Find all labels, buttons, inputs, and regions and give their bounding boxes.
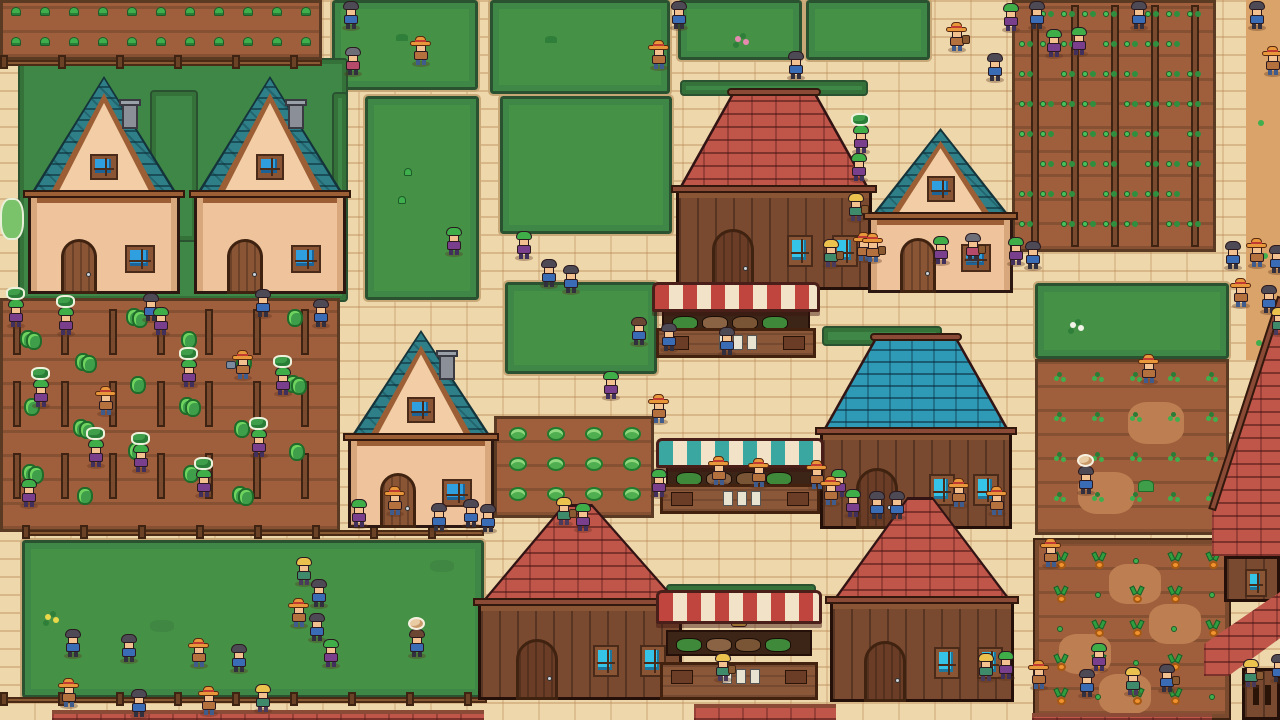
villager-hair	[1003, 3, 1019, 12]
door[interactable]	[712, 229, 754, 290]
trellis-pole	[109, 453, 117, 499]
tiny-sprout-cluster	[1168, 496, 1173, 501]
villager-hair	[58, 307, 74, 316]
villager-dark[interactable]	[1246, 0, 1268, 30]
villager-straw[interactable]	[188, 638, 210, 668]
villager-dark[interactable]	[1076, 668, 1098, 698]
building-house-teal[interactable]	[194, 76, 346, 294]
villager-dark[interactable]	[477, 503, 499, 533]
villager-dark[interactable]	[716, 326, 738, 356]
carrot-plant	[1091, 552, 1107, 570]
villager-body	[432, 517, 446, 526]
window-glass	[296, 250, 314, 266]
carrot-plant	[1053, 654, 1069, 672]
villager-straw[interactable]	[748, 458, 770, 488]
villager-dark[interactable]	[1026, 0, 1048, 30]
villager-dark[interactable]	[428, 502, 450, 532]
villager-dark[interactable]	[62, 628, 84, 658]
small-sprout	[1133, 558, 1139, 564]
villager-hair	[231, 644, 247, 653]
villager-dark[interactable]	[310, 298, 332, 328]
hop-bundle	[194, 457, 213, 470]
door-knob	[895, 678, 900, 683]
building-house-teal[interactable]	[868, 128, 1013, 293]
window-mullion	[94, 168, 114, 170]
villager-blonde[interactable]	[1268, 306, 1280, 336]
villager-hair	[255, 289, 271, 298]
villager-shadow	[630, 341, 648, 347]
counter-panel	[671, 492, 693, 506]
villager-shadow	[254, 313, 272, 319]
villager-green-carrying-hops[interactable]	[30, 378, 52, 408]
villager-dark[interactable]	[668, 0, 690, 30]
bean-sprout	[1082, 11, 1088, 17]
villager-straw[interactable]	[1230, 278, 1252, 308]
straw-hat-band	[237, 354, 248, 356]
vine-clump	[289, 443, 305, 461]
villager-shadow	[60, 703, 78, 709]
villager-green-carrying-hops[interactable]	[248, 428, 270, 458]
villager-body	[576, 517, 590, 526]
straw-hat-band	[653, 398, 664, 400]
counter-card	[737, 491, 747, 506]
villager-shadow	[234, 375, 252, 381]
seedling-plant	[156, 7, 166, 16]
villager-blonde-carrying-basket[interactable]	[712, 652, 734, 682]
bean-sprout	[1103, 221, 1109, 227]
villager-gray-carrying-basket[interactable]	[962, 232, 984, 262]
fence-post	[232, 692, 240, 706]
villager-dark[interactable]	[658, 322, 680, 352]
villager-green[interactable]	[930, 235, 952, 265]
building-barn-red[interactable]	[478, 504, 682, 700]
villager-green[interactable]	[1000, 2, 1022, 32]
villager-green[interactable]	[320, 638, 342, 668]
villager-green[interactable]	[150, 306, 172, 336]
straw-hat-band	[1251, 242, 1262, 244]
basket	[836, 251, 844, 260]
villager-hair	[575, 503, 591, 512]
building-house-teal[interactable]	[28, 76, 180, 294]
villager-dark[interactable]	[785, 50, 807, 80]
straw-hat-band	[825, 480, 836, 482]
straw-hat-band	[100, 390, 111, 392]
villager-green[interactable]	[513, 230, 535, 260]
villager-straw[interactable]	[1246, 238, 1268, 268]
villager-dark[interactable]	[1266, 244, 1280, 274]
villager-hair	[296, 557, 312, 566]
bean-sprout	[1166, 11, 1172, 17]
villager-body	[720, 341, 734, 350]
straw-hat-band	[1033, 664, 1044, 666]
villager-shadow	[230, 668, 248, 674]
villager-body	[1079, 480, 1093, 489]
villager-dark[interactable]	[538, 258, 560, 288]
villager-body	[1272, 668, 1280, 677]
window-mullion	[129, 260, 151, 262]
villager-body	[542, 273, 556, 282]
seedling-plant	[272, 7, 282, 16]
bean-sprout	[1082, 161, 1088, 167]
dirt-grass-dot	[1258, 120, 1264, 126]
villager-straw[interactable]	[1040, 538, 1062, 568]
carrot-plant	[1129, 620, 1145, 638]
villager-hair	[313, 299, 329, 308]
villager-hair	[196, 469, 212, 478]
wall-corner	[337, 197, 343, 291]
counter-card	[751, 491, 761, 506]
villager-body	[1072, 41, 1086, 50]
villager-blonde[interactable]	[975, 652, 997, 682]
bean-sprout	[1166, 161, 1172, 167]
door-knob	[547, 676, 552, 681]
villager-body	[1026, 255, 1040, 264]
tiny-sprout-cluster	[1054, 376, 1059, 381]
bean-sprout	[1187, 161, 1193, 167]
bean-sprout	[1061, 11, 1067, 17]
villager-green-carrying-hops[interactable]	[85, 438, 107, 468]
bean-sprout	[1061, 191, 1067, 197]
villager-straw[interactable]	[1138, 354, 1160, 384]
villager-dark[interactable]	[560, 264, 582, 294]
wall-wood	[676, 189, 872, 290]
villager-body	[1030, 15, 1044, 24]
villager-body	[999, 665, 1013, 674]
watering-can	[226, 361, 236, 369]
villager-body	[197, 483, 211, 492]
grass-plot	[1035, 283, 1229, 359]
door[interactable]	[227, 239, 263, 294]
villager-hair	[33, 379, 49, 388]
villager-green-carrying-hops[interactable]	[272, 366, 294, 396]
villager-body	[890, 505, 904, 514]
villager-shadow	[850, 177, 868, 183]
villager-hair	[1131, 1, 1147, 10]
villager-shadow	[1042, 563, 1060, 569]
trellis-pole	[157, 453, 165, 499]
chimney	[122, 103, 138, 129]
villager-body	[662, 337, 676, 346]
villager-green-carrying-hops[interactable]	[130, 443, 152, 473]
villager-hair	[345, 47, 361, 56]
villager-body	[134, 458, 148, 467]
villager-straw[interactable]	[410, 36, 432, 66]
chimney-cap	[285, 99, 307, 106]
bean-sprout	[1040, 131, 1046, 137]
villager-body	[346, 61, 360, 70]
market-stall[interactable]	[660, 590, 818, 700]
villager-hair	[1271, 307, 1280, 316]
window-mullion	[1257, 573, 1259, 593]
villager-brown[interactable]	[628, 316, 650, 346]
window	[407, 397, 435, 423]
villager-green-carrying-hops[interactable]	[850, 124, 872, 154]
fence-post	[464, 692, 472, 706]
villager-hair	[21, 479, 37, 488]
villager-hair	[563, 265, 579, 274]
villager-shadow	[844, 513, 862, 519]
vine-clump	[77, 487, 93, 505]
villager-shadow	[670, 25, 688, 31]
basket	[1172, 676, 1180, 685]
window-mullion	[846, 239, 848, 263]
villager-green[interactable]	[648, 468, 670, 498]
villager-straw-carrying-basket[interactable]	[946, 22, 968, 52]
villager-dark[interactable]	[128, 688, 150, 718]
villager-dark[interactable]	[1128, 0, 1150, 30]
villager-body	[276, 381, 290, 390]
stall-counter[interactable]	[660, 484, 820, 514]
trellis-pole	[253, 453, 261, 499]
roof-brick	[823, 336, 1009, 435]
door[interactable]	[864, 641, 906, 702]
villager-straw[interactable]	[708, 456, 730, 486]
villager-shadow	[540, 283, 558, 289]
villager-hair	[1249, 1, 1265, 10]
villager-dark[interactable]	[340, 0, 362, 30]
bean-sprout	[1082, 71, 1088, 77]
villager-shadow	[479, 528, 497, 534]
villager-shadow	[274, 391, 292, 397]
hop-bundle	[31, 367, 50, 380]
villager-hair	[978, 653, 994, 662]
villager-hair	[251, 429, 267, 438]
villager-blonde-carrying-basket[interactable]	[820, 238, 842, 268]
villager-body	[652, 55, 666, 64]
window	[934, 647, 960, 679]
villager-blonde-carrying-basket[interactable]	[1240, 658, 1262, 688]
window	[787, 235, 813, 267]
market-stall[interactable]	[660, 438, 820, 514]
villager-body	[712, 471, 726, 480]
villager-gray[interactable]	[342, 46, 364, 76]
villager-dark[interactable]	[1022, 240, 1044, 270]
villager-straw[interactable]	[948, 478, 970, 508]
villager-hair	[631, 317, 647, 326]
villager-body	[1142, 369, 1156, 378]
window-mullion	[260, 168, 280, 170]
villager-hair	[845, 489, 861, 498]
villager-dark[interactable]	[866, 490, 888, 520]
bean-sprout	[1166, 191, 1172, 197]
villager-hair	[255, 684, 271, 693]
villager-dark[interactable]	[984, 52, 1006, 82]
villager-shadow	[195, 493, 213, 499]
villager-green[interactable]	[1043, 28, 1065, 58]
bean-sprout	[1166, 41, 1172, 47]
villager-shadow	[986, 77, 1004, 83]
villager-body	[934, 250, 948, 259]
window-mullion	[411, 411, 431, 413]
villager-dark[interactable]	[1268, 653, 1280, 683]
villager-green[interactable]	[572, 502, 594, 532]
tilled-patch	[1128, 402, 1184, 444]
stall-goods	[735, 638, 761, 652]
fence-post	[116, 692, 124, 706]
villager-body	[22, 493, 36, 502]
villager-body	[1032, 675, 1046, 684]
vine-clump	[81, 355, 97, 373]
villager-straw[interactable]	[384, 486, 406, 516]
bean-sprout	[1061, 71, 1067, 77]
window-glass	[130, 250, 148, 266]
villager-dark[interactable]	[252, 288, 274, 318]
onion	[1077, 454, 1094, 467]
villager-straw-carrying-can[interactable]	[232, 350, 254, 380]
straw-hat-band	[415, 40, 426, 42]
villager-green-carrying-hops[interactable]	[5, 298, 27, 328]
villager-body	[256, 698, 270, 707]
eave	[189, 190, 351, 198]
villager-dark[interactable]	[228, 643, 250, 673]
window-glass	[95, 159, 111, 173]
villager-shadow	[650, 419, 668, 425]
tiny-sprout-cluster	[1054, 456, 1059, 461]
villager-hair	[1261, 285, 1277, 294]
bean-sprout	[1082, 101, 1088, 107]
villager-brown-carrying-onion[interactable]	[406, 628, 428, 658]
villager-dark-carrying-basket[interactable]	[1156, 663, 1178, 693]
bean-sprout	[1124, 131, 1130, 137]
villager-body	[314, 313, 328, 322]
villager-green[interactable]	[842, 488, 864, 518]
villager-body	[410, 643, 424, 652]
villager-green[interactable]	[995, 650, 1017, 680]
villager-green[interactable]	[848, 152, 870, 182]
seedling-plant	[301, 37, 311, 46]
villager-straw[interactable]	[1028, 660, 1050, 690]
rooftop-edge	[1032, 713, 1212, 720]
small-sprout	[1057, 626, 1063, 632]
villager-hair	[431, 503, 447, 512]
flower	[735, 36, 741, 42]
roof-brick	[679, 91, 869, 193]
door-knob	[743, 266, 748, 271]
villager-body	[1250, 253, 1264, 262]
villager-body	[324, 653, 338, 662]
bean-sprout	[1103, 71, 1109, 77]
window-mullion	[105, 158, 107, 176]
villager-green-carrying-hops[interactable]	[178, 358, 200, 388]
villager-dark-carrying-onion[interactable]	[1075, 465, 1097, 495]
bean-sprout	[1124, 191, 1130, 197]
bean-sprout	[1103, 131, 1109, 137]
villager-straw[interactable]	[198, 686, 220, 716]
carrot-plant	[1167, 586, 1183, 604]
tiny-sprout-cluster	[1206, 416, 1211, 421]
villager-green[interactable]	[18, 478, 40, 508]
villager-shadow	[57, 331, 75, 337]
villager-shadow	[1158, 688, 1176, 694]
stall-goods	[706, 638, 732, 652]
carrot-plant	[1167, 552, 1183, 570]
counter-card	[747, 335, 757, 350]
villager-shadow	[250, 453, 268, 459]
window-glass	[792, 240, 806, 260]
basket	[861, 205, 869, 214]
villager-blonde[interactable]	[252, 683, 274, 713]
villager-hair	[1269, 245, 1280, 254]
window-slit	[1265, 685, 1271, 705]
door[interactable]	[516, 639, 558, 700]
villager-blonde-carrying-basket[interactable]	[845, 192, 867, 222]
villager-green[interactable]	[1068, 26, 1090, 56]
villager-straw[interactable]	[986, 486, 1008, 516]
seedling-plant	[272, 37, 282, 46]
villager-hair	[1078, 466, 1094, 475]
door[interactable]	[61, 239, 97, 294]
window	[927, 176, 955, 202]
fence-post	[196, 525, 204, 539]
villager-straw[interactable]	[95, 386, 117, 416]
villager-dark[interactable]	[308, 578, 330, 608]
villager-dark[interactable]	[1222, 240, 1244, 270]
tiny-sprout-cluster	[1130, 416, 1135, 421]
window-glass	[598, 650, 612, 670]
villager-shadow	[87, 463, 105, 469]
villager-shadow	[152, 331, 170, 337]
villager-shadow	[950, 503, 968, 509]
villager-body	[312, 593, 326, 602]
straw-hat-band	[1235, 282, 1246, 284]
villager-hair	[446, 227, 462, 236]
basket	[978, 245, 986, 254]
trellis-pole	[1191, 5, 1199, 247]
bean-sprout	[1019, 191, 1025, 197]
seedling-plant	[127, 7, 137, 16]
window-glass	[939, 652, 953, 672]
tiny-sprout-cluster	[1130, 456, 1135, 461]
cabbage	[509, 487, 527, 501]
tiny-sprout-cluster	[1054, 496, 1059, 501]
hop-bundle	[56, 295, 75, 308]
villager-body	[1250, 15, 1264, 24]
seedling-plant	[69, 37, 79, 46]
grass-plot	[806, 0, 930, 60]
villager-straw-carrying-basket[interactable]	[862, 233, 884, 263]
villager-straw[interactable]	[648, 394, 670, 424]
villager-blonde[interactable]	[1122, 666, 1144, 696]
villager-green-carrying-hops[interactable]	[55, 306, 77, 336]
building-edge-right[interactable]	[1212, 298, 1280, 600]
window-mullion	[801, 239, 803, 263]
bean-sprout	[1040, 191, 1046, 197]
vine-clump	[185, 399, 201, 417]
villager-straw[interactable]	[648, 40, 670, 70]
villager-straw[interactable]	[1262, 46, 1280, 76]
carrot-plant	[1053, 586, 1069, 604]
villager-hair	[323, 639, 339, 648]
villager-shadow	[1124, 691, 1142, 697]
villager-green[interactable]	[348, 498, 370, 528]
villager-green-carrying-hops[interactable]	[193, 468, 215, 498]
villager-green[interactable]	[600, 370, 622, 400]
bean-sprout	[1061, 161, 1067, 167]
bean-sprout	[1124, 101, 1130, 107]
stall-counter[interactable]	[660, 662, 818, 700]
trellis-pole	[1151, 5, 1159, 247]
rooftop-edge	[694, 704, 836, 720]
vine-clump	[26, 332, 42, 350]
villager-straw[interactable]	[58, 678, 80, 708]
villager-body	[252, 443, 266, 452]
fence-post	[348, 692, 356, 706]
villager-green[interactable]	[443, 226, 465, 256]
villager-dark[interactable]	[886, 490, 908, 520]
villager-body	[1009, 251, 1023, 260]
villager-dark[interactable]	[118, 633, 140, 663]
villager-straw[interactable]	[820, 476, 842, 506]
